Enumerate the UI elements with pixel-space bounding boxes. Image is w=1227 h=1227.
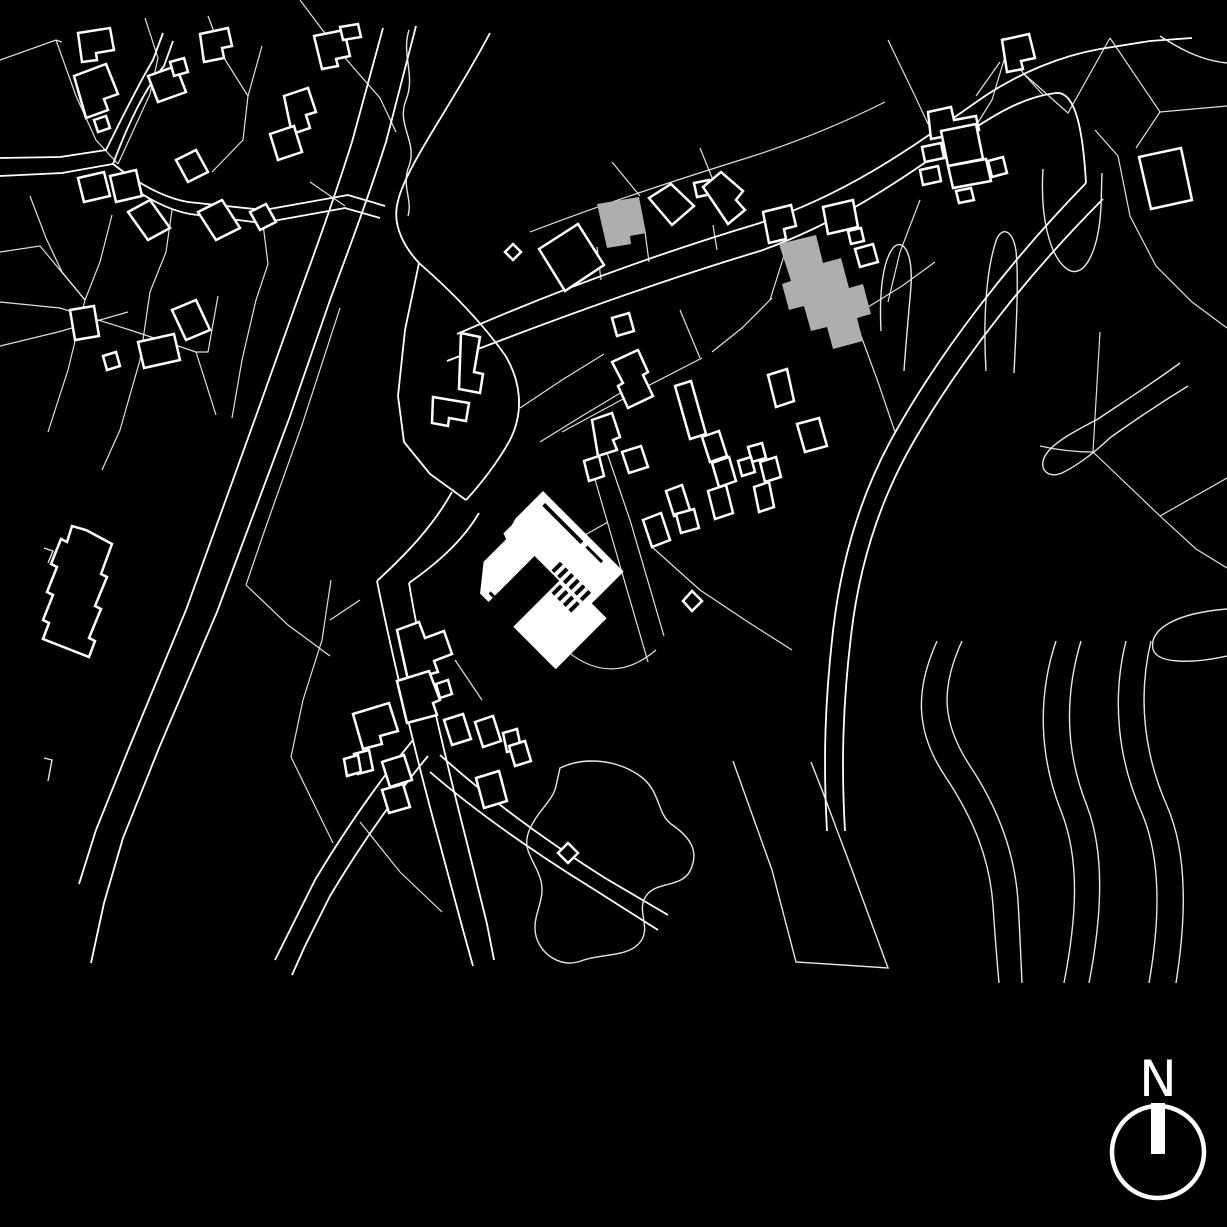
building-outline [78,172,110,202]
building-outline [760,457,781,482]
building-outline [70,306,99,340]
building-outline [436,680,452,698]
building-outline [344,755,361,776]
building-outline [848,228,864,244]
building-outline [612,313,634,336]
building-outline [103,352,120,370]
site-plan-drawing: N [0,0,1227,1227]
building-outline [738,457,755,476]
building-outline [170,58,188,76]
building-outline [340,24,361,40]
building-outline [988,157,1007,177]
building-outline [110,170,142,202]
north-label: N [1139,1050,1176,1108]
building-outline [94,116,110,132]
building-outline [956,188,974,203]
building-outline [922,143,944,162]
north-needle [1151,1103,1165,1154]
building-outline [754,482,774,512]
building-outline [584,456,604,481]
building-outline [855,244,878,267]
building-outline [920,166,941,185]
building-outline [676,509,699,533]
